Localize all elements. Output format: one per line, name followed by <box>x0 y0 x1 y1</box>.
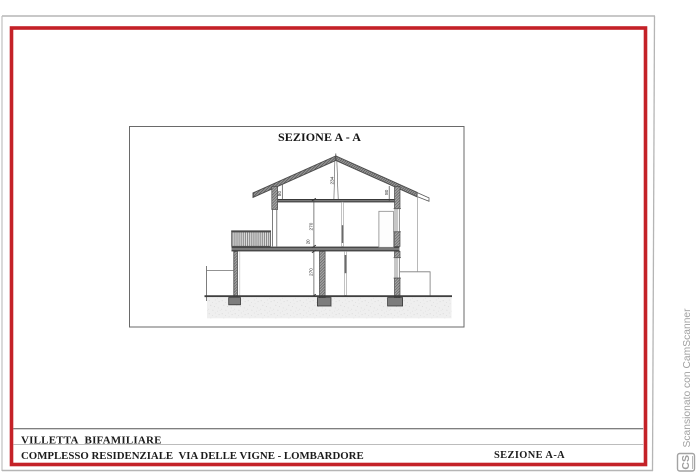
svg-text:20: 20 <box>306 239 311 244</box>
svg-text:270: 270 <box>308 268 313 276</box>
svg-text:VILLETTA BIFAMILIARE: VILLETTA BIFAMILIARE <box>21 435 162 447</box>
svg-text:COMPLESSO RESIDENZIALE VIA DE: COMPLESSO RESIDENZIALE VIA DELLE VIGNE -… <box>21 450 364 462</box>
svg-text:SEZIONE A-A: SEZIONE A-A <box>494 450 565 461</box>
svg-text:SEZIONE A - A: SEZIONE A - A <box>278 130 361 144</box>
svg-text:80: 80 <box>384 189 389 195</box>
svg-text:CS: CS <box>680 455 692 470</box>
svg-text:270: 270 <box>308 222 313 230</box>
svg-text:234: 234 <box>330 176 335 184</box>
svg-text:Scansionato con CamScanner: Scansionato con CamScanner <box>682 308 693 448</box>
svg-text:80: 80 <box>277 190 282 196</box>
